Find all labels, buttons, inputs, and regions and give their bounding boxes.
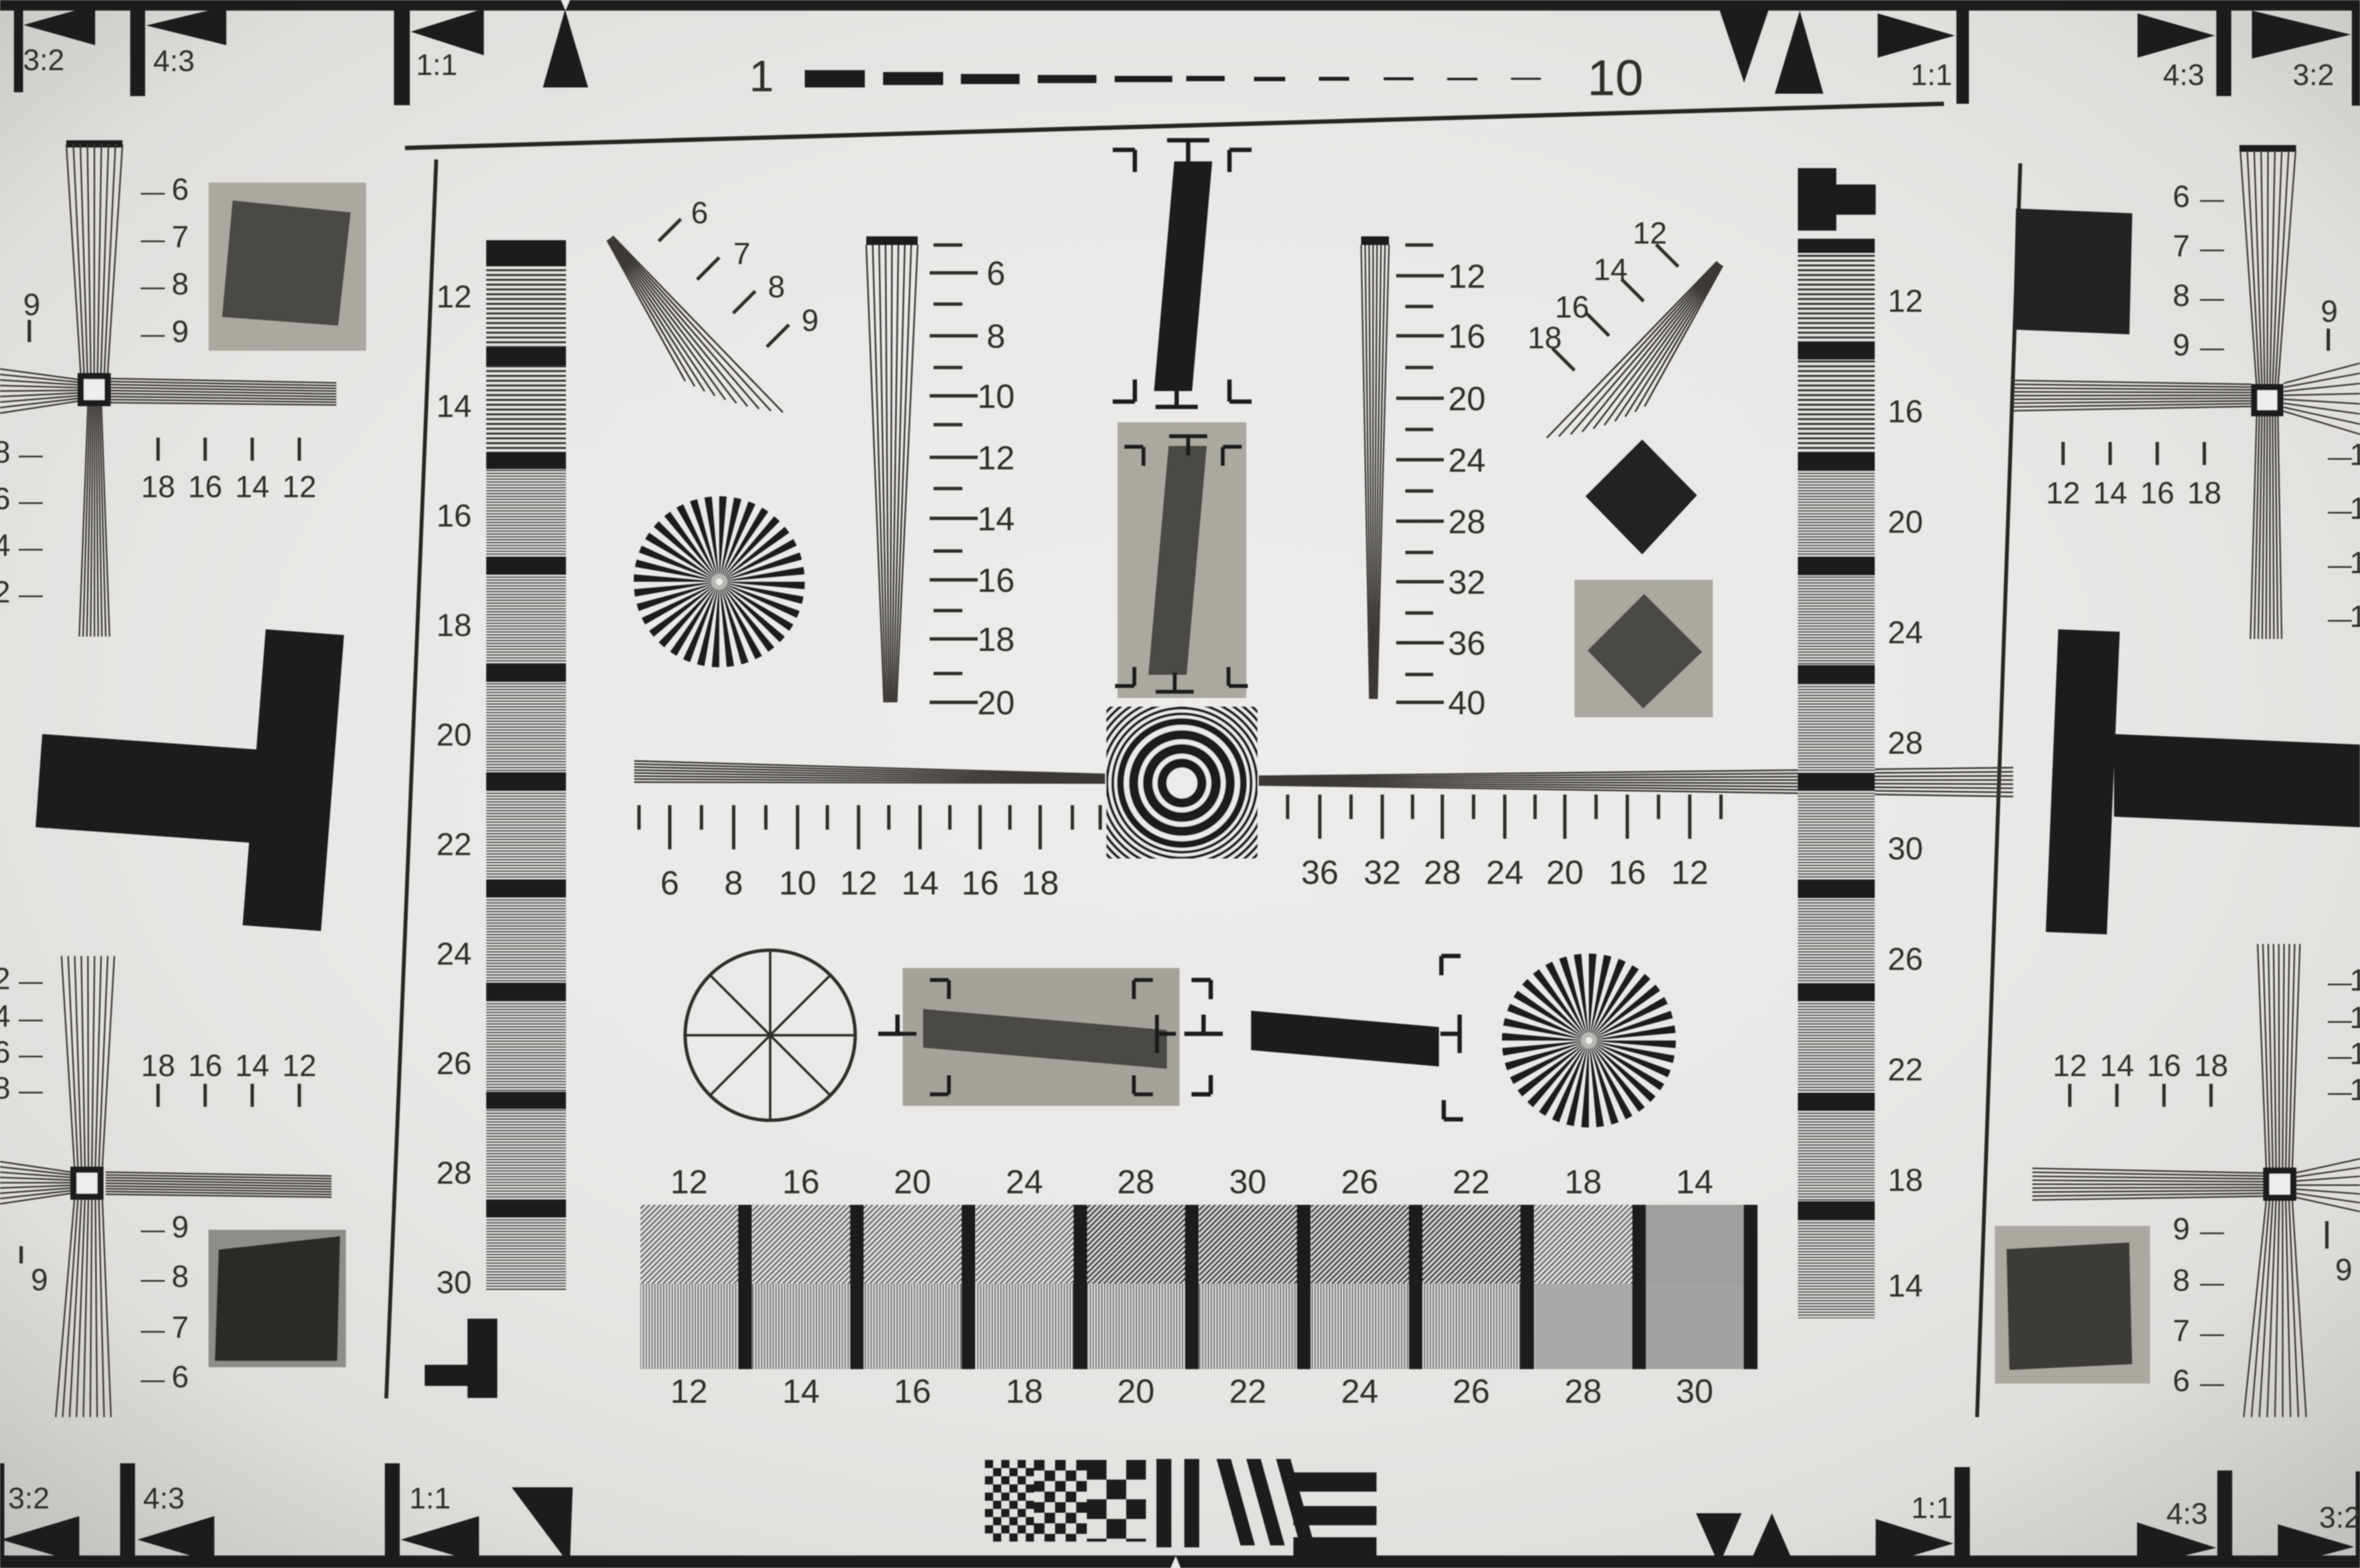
svg-text:1:1: 1:1 [409,1482,451,1515]
svg-text:1:1: 1:1 [1911,1492,1953,1525]
svg-text:7: 7 [2173,229,2190,263]
svg-text:6: 6 [172,1360,189,1394]
svg-text:36: 36 [1301,854,1339,891]
svg-text:18: 18 [2349,1072,2360,1107]
svg-text:26: 26 [436,1045,471,1081]
svg-text:12: 12 [1888,283,1923,318]
svg-text:—: — [2200,284,2224,311]
svg-text:24: 24 [1888,614,1923,650]
svg-text:—: — [19,1005,43,1032]
svg-text:28: 28 [1888,725,1923,760]
svg-text:9: 9 [31,1262,48,1297]
svg-text:18: 18 [0,435,11,469]
svg-text:12: 12 [670,1372,708,1410]
svg-text:4:3: 4:3 [2166,1497,2208,1531]
svg-text:9: 9 [801,303,819,338]
svg-text:6: 6 [172,172,189,207]
svg-text:—: — [19,581,43,608]
svg-text:—: — [2328,551,2352,578]
svg-text:30: 30 [1888,831,1923,866]
svg-text:14: 14 [977,500,1015,538]
svg-text:20: 20 [1888,504,1923,539]
svg-text:16: 16 [2147,1048,2181,1083]
svg-text:14: 14 [1593,252,1627,287]
svg-text:30: 30 [1229,1163,1266,1200]
svg-text:—: — [141,1366,165,1393]
svg-text:4:3: 4:3 [143,1482,184,1515]
svg-text:—: — [2200,1218,2224,1245]
svg-text:20: 20 [436,717,471,752]
svg-text:—: — [141,1216,165,1243]
svg-text:28: 28 [1564,1372,1602,1410]
svg-text:28: 28 [1117,1163,1155,1200]
svg-text:18: 18 [1527,320,1561,355]
svg-text:—: — [141,226,165,253]
svg-text:—: — [19,534,43,561]
svg-text:—: — [19,968,43,994]
svg-text:36: 36 [1448,625,1486,662]
svg-text:16: 16 [188,1048,222,1083]
svg-text:18: 18 [436,607,471,643]
svg-text:18: 18 [1888,1162,1923,1198]
svg-text:6: 6 [987,255,1006,292]
svg-text:14: 14 [782,1372,820,1410]
svg-text:10: 10 [1587,50,1644,106]
svg-text:—: — [2200,1320,2224,1347]
svg-text:—: — [2328,605,2352,632]
svg-text:16: 16 [1555,290,1589,324]
svg-text:12: 12 [1448,257,1486,295]
svg-text:—: — [2200,185,2224,212]
svg-text:16: 16 [188,469,222,504]
svg-text:10: 10 [779,864,816,902]
svg-text:14: 14 [235,469,269,504]
svg-text:30: 30 [1676,1372,1713,1410]
svg-text:12: 12 [282,469,316,504]
svg-text:24: 24 [1486,854,1524,891]
svg-text:12: 12 [0,961,11,996]
svg-text:9: 9 [2173,328,2190,362]
svg-text:18: 18 [141,1048,175,1083]
svg-text:—: — [141,1265,165,1292]
svg-text:26: 26 [1341,1163,1378,1200]
svg-text:14: 14 [436,388,471,424]
svg-text:—: — [2328,1078,2352,1105]
svg-text:24: 24 [1341,1372,1378,1410]
svg-text:1: 1 [749,52,774,101]
svg-text:16: 16 [0,481,11,516]
svg-text:24: 24 [1448,441,1486,479]
svg-text:20: 20 [1448,380,1486,417]
svg-text:12: 12 [2349,437,2360,472]
svg-text:3:2: 3:2 [2293,59,2334,92]
svg-text:30: 30 [436,1264,471,1300]
svg-text:3:2: 3:2 [2319,1501,2360,1534]
svg-text:8: 8 [2173,278,2190,313]
svg-text:6: 6 [661,864,679,902]
svg-text:28: 28 [1448,503,1486,540]
svg-text:16: 16 [977,562,1015,599]
svg-text:3:2: 3:2 [23,44,64,77]
svg-text:40: 40 [1448,684,1486,722]
svg-text:14: 14 [2093,476,2127,510]
svg-text:14: 14 [1888,1268,1923,1303]
svg-text:18: 18 [2194,1048,2228,1083]
svg-text:20: 20 [1546,854,1584,891]
svg-text:32: 32 [1364,854,1401,891]
svg-text:16: 16 [2349,1036,2360,1071]
svg-text:—: — [2200,235,2224,262]
svg-text:16: 16 [2349,545,2360,580]
svg-text:16: 16 [894,1372,931,1410]
svg-text:18: 18 [0,1071,11,1105]
svg-text:12: 12 [840,864,877,902]
svg-text:—: — [19,441,43,468]
svg-text:14: 14 [2349,1000,2360,1035]
svg-text:12: 12 [670,1163,708,1200]
svg-text:16: 16 [2140,476,2174,510]
svg-text:12: 12 [282,1048,316,1083]
svg-text:9: 9 [2321,294,2338,329]
svg-text:—: — [2328,443,2352,470]
svg-text:6: 6 [691,196,708,230]
svg-text:6: 6 [2173,179,2190,214]
svg-text:4:3: 4:3 [153,45,195,78]
svg-text:9: 9 [172,314,189,349]
svg-text:—: — [2200,1269,2224,1296]
svg-text:12: 12 [977,439,1015,477]
svg-text:—: — [141,320,165,347]
svg-text:12: 12 [2053,1048,2087,1083]
svg-text:12: 12 [436,279,471,314]
svg-text:9: 9 [2335,1252,2352,1287]
svg-text:14: 14 [1676,1163,1713,1200]
svg-text:18: 18 [977,621,1015,658]
svg-text:22: 22 [1888,1052,1923,1087]
svg-text:—: — [2328,1006,2352,1033]
svg-text:8: 8 [987,318,1006,355]
svg-text:28: 28 [1424,854,1461,891]
svg-text:22: 22 [436,826,471,862]
svg-text:12: 12 [1671,854,1709,891]
svg-text:—: — [2328,1042,2352,1069]
svg-text:20: 20 [894,1163,931,1200]
svg-text:16: 16 [782,1163,820,1200]
svg-text:16: 16 [0,1035,11,1069]
svg-text:8: 8 [172,267,189,301]
svg-text:1:1: 1:1 [1911,59,1952,92]
svg-text:—: — [2200,1370,2224,1396]
svg-text:8: 8 [2173,1263,2190,1298]
svg-text:9: 9 [172,1210,189,1244]
svg-text:18: 18 [141,469,175,504]
svg-text:18: 18 [2349,599,2360,634]
svg-text:20: 20 [977,684,1015,722]
svg-text:18: 18 [1564,1163,1602,1200]
svg-text:14: 14 [0,528,11,563]
svg-text:32: 32 [1448,563,1486,601]
svg-text:—: — [19,1041,43,1068]
svg-text:18: 18 [1006,1372,1043,1410]
svg-text:7: 7 [172,1310,189,1345]
svg-text:9: 9 [2173,1212,2190,1246]
svg-text:1:1: 1:1 [416,49,457,82]
svg-text:16: 16 [436,498,471,533]
svg-text:—: — [2328,497,2352,524]
svg-text:—: — [141,1316,165,1343]
svg-text:12: 12 [2046,476,2080,510]
svg-text:9: 9 [23,287,40,322]
svg-text:7: 7 [733,236,750,271]
svg-text:—: — [19,1077,43,1104]
svg-text:26: 26 [1452,1372,1490,1410]
svg-text:3:2: 3:2 [8,1482,49,1515]
svg-text:8: 8 [725,864,743,902]
svg-text:24: 24 [1006,1163,1043,1200]
svg-text:20: 20 [1117,1372,1155,1410]
svg-text:6: 6 [2173,1363,2190,1398]
svg-text:22: 22 [1452,1163,1490,1200]
svg-text:4:3: 4:3 [2163,59,2204,92]
svg-text:24: 24 [436,936,471,971]
svg-text:14: 14 [901,864,939,902]
svg-text:12: 12 [0,575,11,609]
svg-text:8: 8 [172,1259,189,1294]
svg-text:—: — [2200,334,2224,361]
svg-text:14: 14 [0,999,11,1033]
svg-text:—: — [19,488,43,514]
svg-text:14: 14 [2349,491,2360,526]
svg-text:12: 12 [1633,216,1667,250]
svg-text:8: 8 [768,269,785,304]
svg-text:16: 16 [961,864,999,902]
svg-text:—: — [141,178,165,205]
svg-text:18: 18 [1021,864,1059,902]
svg-text:7: 7 [172,220,189,254]
svg-text:18: 18 [2187,476,2221,510]
svg-text:22: 22 [1229,1372,1266,1410]
svg-text:16: 16 [1888,393,1923,429]
svg-text:16: 16 [1448,318,1486,355]
svg-text:7: 7 [2173,1313,2190,1348]
svg-text:—: — [141,273,165,300]
svg-text:14: 14 [235,1048,269,1083]
svg-text:14: 14 [2100,1048,2134,1083]
svg-text:16: 16 [1609,854,1646,891]
svg-text:26: 26 [1888,941,1923,977]
svg-text:10: 10 [977,378,1015,415]
svg-text:12: 12 [2349,963,2360,997]
svg-text:28: 28 [436,1155,471,1190]
svg-text:—: — [2328,969,2352,996]
